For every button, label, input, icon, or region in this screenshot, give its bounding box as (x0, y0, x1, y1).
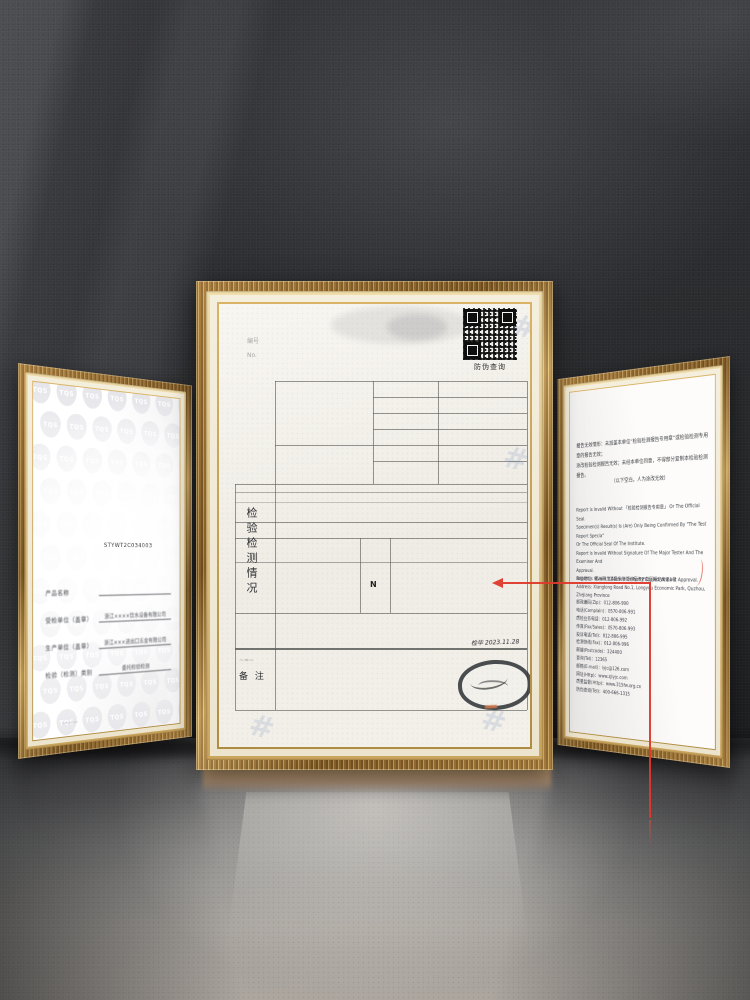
table-line (275, 381, 527, 382)
table-line (360, 538, 361, 613)
table-line (235, 710, 527, 711)
form-field-row: 产品名称 (45, 585, 171, 597)
english-notes-block: Report Is Invalid Without 「检验检测报告专用章」 Or… (576, 502, 708, 586)
table-line (390, 538, 391, 613)
table-line (438, 381, 439, 484)
product-photo-stage: TQSTQSTQSTQSTQSTQSTQSTQSTQSTQSTQSTQSTQST… (0, 0, 750, 1000)
faint-pencil-note-1: 编号 (247, 336, 259, 345)
qr-caption: 防伪查询 (459, 362, 521, 372)
stamp-orange-mark (485, 705, 497, 709)
field-value-underline (99, 593, 171, 597)
result-mark-n: N (370, 580, 377, 589)
field-label: 生产单位（盖章） (45, 640, 99, 653)
field-label: 受检单位（盖章） (45, 613, 99, 625)
red-line-reflection (649, 820, 651, 848)
right-certificate-paper: 报告无效情形：未加盖本单位“检验检测报告专用章”或检验检测专用章的报告无效；涂改… (570, 375, 715, 749)
faint-header-smudge-2 (387, 314, 447, 340)
form-field-row: 检验（检测）类别委托检验检测 (45, 660, 171, 680)
form-field-row: 受检单位（盖章）浙江××××饮水设备有限公司 (45, 610, 171, 625)
table-line (235, 562, 527, 563)
section-label-inspection-results: 检验检测情况 (243, 507, 259, 657)
handwritten-date-note: 检毕 2023.11.28 (471, 636, 530, 647)
table-line (373, 461, 527, 462)
field-value-underline: 浙江×××进出口五金有限公司 (99, 635, 171, 649)
table-line (235, 648, 527, 650)
guilloche-mark: # (245, 707, 278, 747)
oval-ink-stamp (457, 658, 530, 712)
english-note-line: Specimen(s) Result(s) Is (Are) Only Bein… (576, 521, 708, 542)
table-line (275, 381, 276, 710)
center-frame-floor-reflection (225, 792, 530, 957)
report-number: STYWT2C034003 (80, 541, 174, 549)
right-frame-reflection (531, 748, 744, 878)
center-certificate-paper: 编号 No. 防伪查询 # # # # (219, 304, 530, 747)
table-line (373, 397, 527, 398)
red-arrowhead (492, 578, 503, 588)
table-line (235, 484, 236, 710)
left-frame-reflection (6, 748, 219, 878)
table-line (275, 445, 527, 446)
table-line (235, 492, 527, 493)
field-label: 检验（检测）类别 (45, 666, 99, 680)
table-line (373, 381, 374, 484)
table-line (373, 413, 527, 414)
table-line (235, 613, 527, 614)
signature-scribble: ﹏﹏ (63, 712, 78, 726)
table-line (527, 381, 528, 710)
table-line (235, 502, 527, 503)
remark-scribble: ~≈~ (239, 657, 254, 664)
qr-finder-topleft (464, 309, 481, 326)
form-field-row: 生产单位（盖章）浙江×××进出口五金有限公司 (45, 635, 171, 653)
field-label: 产品名称 (45, 587, 99, 598)
stamp-scribble (478, 680, 508, 693)
certificate-form-fields: 产品名称受检单位（盖章）浙江××××饮水设备有限公司生产单位（盖章）浙江×××进… (45, 585, 171, 696)
table-line (235, 484, 527, 485)
left-certificate-frame: TQSTQSTQSTQSTQSTQSTQSTQSTQSTQSTQSTQSTQST… (18, 363, 192, 759)
center-certificate-frame: 编号 No. 防伪查询 # # # # (196, 281, 553, 770)
red-annotation-horizontal-line (503, 582, 651, 584)
table-line (235, 538, 527, 539)
red-annotation-vertical-line (649, 582, 651, 818)
table-line (373, 429, 527, 430)
field-value-underline: 委托检验检测 (99, 660, 171, 676)
left-certificate-paper: TQSTQSTQSTQSTQSTQSTQSTQSTQSTQSTQSTQSTQST… (33, 382, 180, 740)
qr-finder-bottomleft (464, 342, 481, 359)
faint-pencil-note-2: No. (247, 352, 257, 359)
contact-info-block: 单位地址：衢州市龙游县东华街道经济开发区翔龙大道1号Address: Xiang… (576, 576, 708, 707)
table-line (235, 522, 527, 523)
remark-label: 备 注 (239, 669, 266, 682)
english-note-line: Report Is Invalid Without Signature Of T… (576, 549, 708, 568)
right-certificate-frame: 报告无效情形：未加盖本单位“检验检测报告专用章”或检验检测专用章的报告无效；涂改… (558, 356, 730, 768)
field-value-underline: 浙江××××饮水设备有限公司 (99, 610, 171, 623)
